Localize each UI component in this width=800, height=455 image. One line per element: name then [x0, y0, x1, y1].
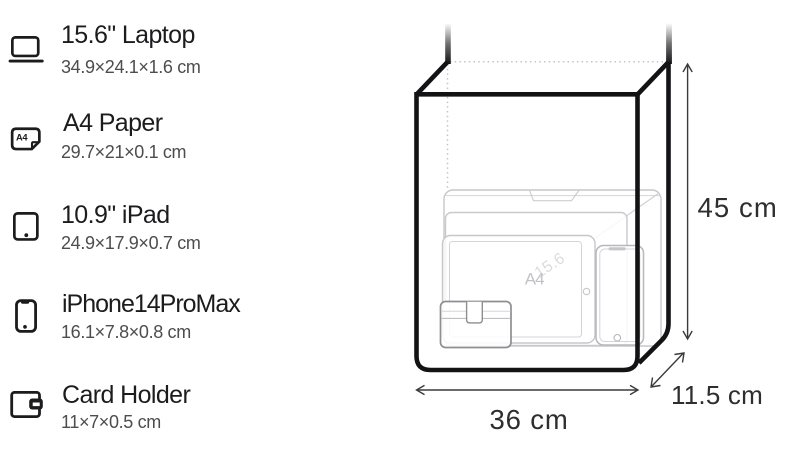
svg-text:A4: A4	[16, 132, 28, 142]
svg-text:A4: A4	[525, 270, 544, 289]
